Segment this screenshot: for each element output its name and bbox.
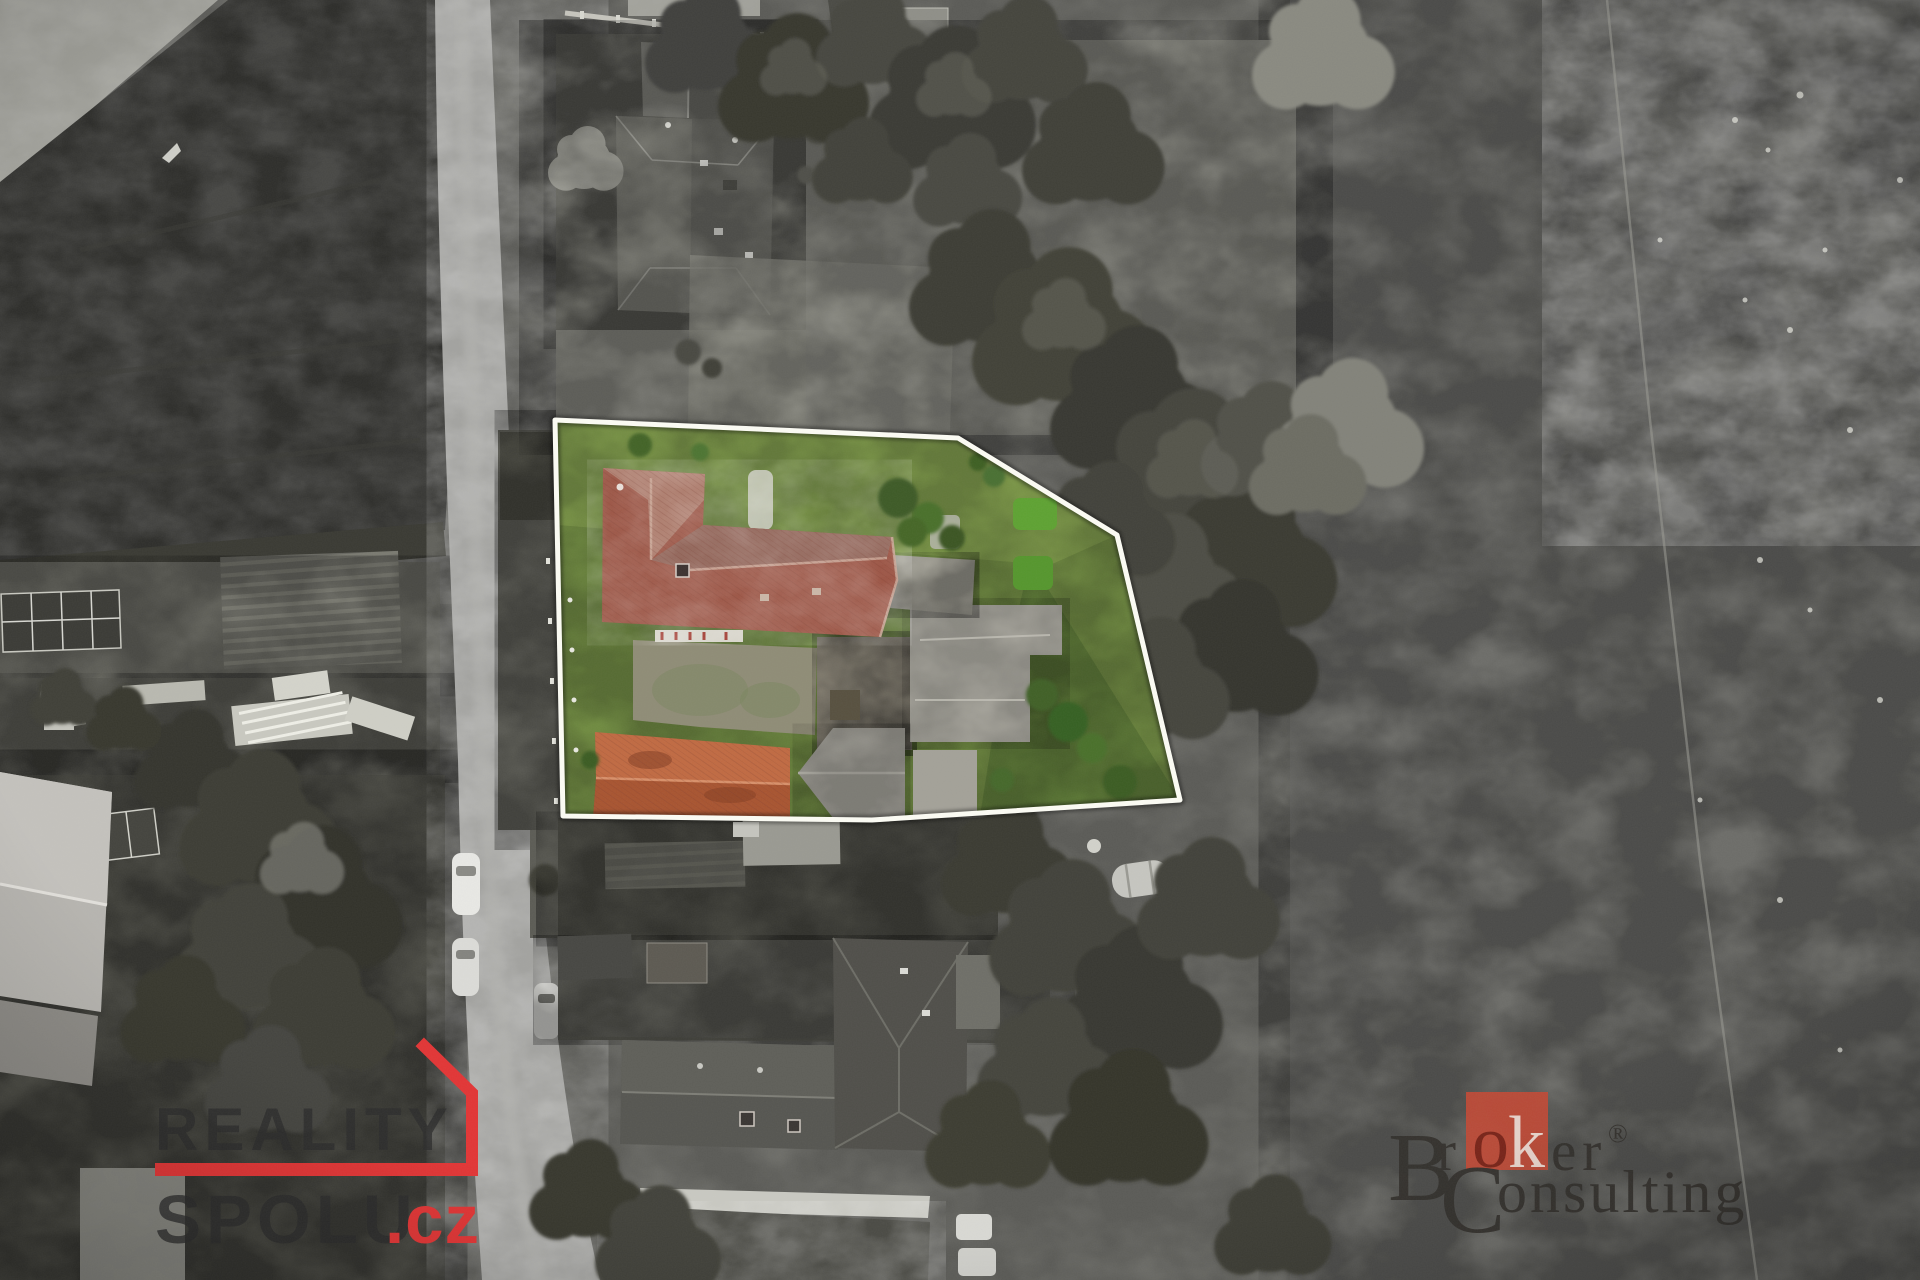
aerial-photo-canvas: REALITY SPOLU .cz B r o k er ® C onsulti… bbox=[0, 0, 1920, 1280]
vignette bbox=[0, 0, 1920, 1280]
aerial-photo: REALITY SPOLU .cz B r o k er ® C onsulti… bbox=[0, 0, 1920, 1280]
